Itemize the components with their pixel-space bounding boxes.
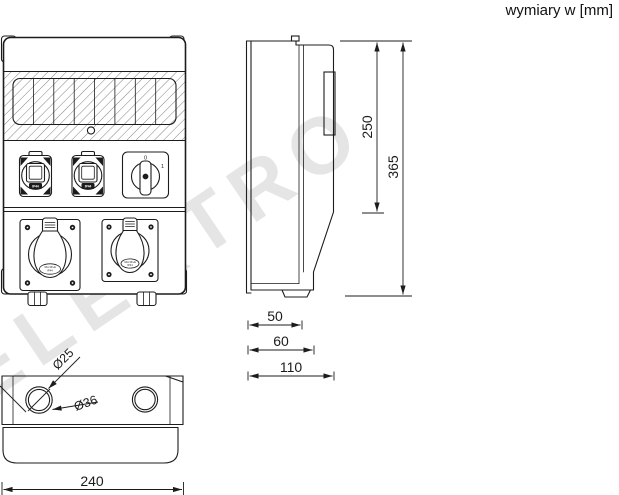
dim-label-50: 50 bbox=[267, 308, 283, 324]
dim-label-60: 60 bbox=[273, 333, 289, 349]
switch-pos-1: 1 bbox=[161, 164, 164, 170]
dim-depth-110: 110 bbox=[248, 359, 334, 381]
rotary-switch: 0 1 bbox=[123, 152, 169, 198]
technical-drawing-page: ELEKTRO bbox=[0, 0, 619, 495]
knockout-right bbox=[132, 387, 157, 412]
schuko-socket-left: IP44 bbox=[20, 152, 52, 197]
cee-label: 16A 3P+E bbox=[44, 265, 56, 269]
cee-socket-right: 16A 3P+E IP44 bbox=[102, 218, 158, 282]
socket-label: IP44 bbox=[85, 185, 92, 189]
dim-label-110: 110 bbox=[280, 359, 303, 375]
dim-label-240: 240 bbox=[80, 473, 104, 489]
window-lock-screw bbox=[87, 127, 94, 134]
cee-label: IP44 bbox=[47, 269, 53, 273]
front-view: IP44 IP44 0 1 bbox=[2, 36, 187, 306]
cee-label: IP44 bbox=[127, 263, 133, 267]
dim-total-width-240: 240 bbox=[2, 473, 184, 495]
dim-label-365: 365 bbox=[385, 155, 401, 179]
dim-depth-60: 60 bbox=[248, 333, 314, 355]
schuko-socket-right: IP44 bbox=[72, 152, 104, 197]
cee-socket-left: 16A 3P+E IP44 bbox=[20, 218, 80, 291]
cable-gland-left bbox=[28, 292, 47, 306]
dim-label-36: Ø36 bbox=[72, 393, 99, 414]
side-ear-tab bbox=[292, 36, 300, 41]
dim-depth-50: 50 bbox=[248, 308, 302, 330]
din-window bbox=[4, 72, 186, 141]
technical-drawing: ELEKTRO bbox=[0, 0, 619, 495]
dim-label-250: 250 bbox=[359, 115, 375, 139]
side-gland-profile bbox=[282, 290, 311, 297]
drawing-title: wymiary w [mm] bbox=[505, 2, 614, 19]
socket-label: IP44 bbox=[32, 185, 39, 189]
cable-gland-right bbox=[137, 292, 156, 306]
